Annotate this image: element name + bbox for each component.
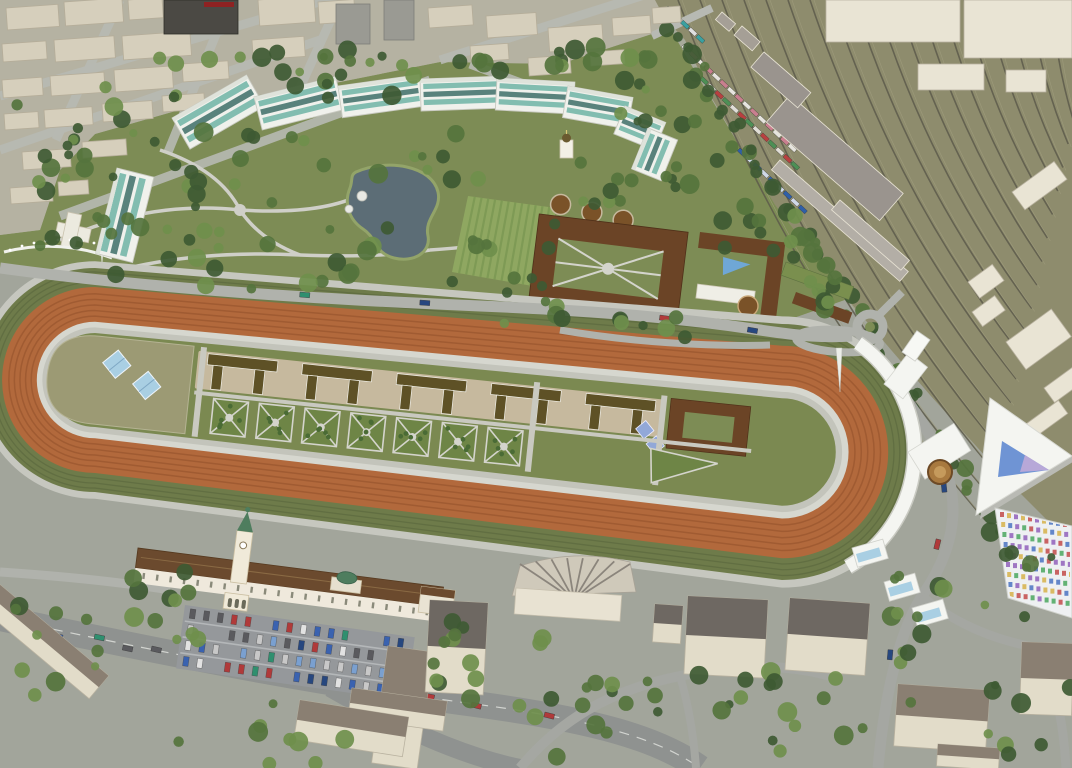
tree bbox=[298, 135, 309, 146]
tree bbox=[688, 115, 702, 129]
tree bbox=[527, 708, 544, 725]
city-building bbox=[4, 112, 39, 130]
tree bbox=[834, 726, 854, 746]
parked-car bbox=[196, 658, 203, 668]
tribune-seat bbox=[1008, 523, 1012, 528]
tree bbox=[543, 691, 559, 707]
parked-car bbox=[245, 617, 252, 627]
tree bbox=[603, 183, 619, 199]
city-building bbox=[50, 72, 105, 96]
city-building bbox=[612, 15, 651, 36]
park-plaza bbox=[234, 204, 246, 216]
tribune-seat bbox=[1046, 549, 1050, 554]
tree bbox=[905, 697, 916, 708]
tree bbox=[712, 701, 730, 719]
tree bbox=[713, 211, 732, 230]
tribune-seat bbox=[1013, 563, 1017, 568]
tree bbox=[778, 702, 798, 722]
tree bbox=[28, 688, 42, 702]
tribune-seat bbox=[1059, 600, 1063, 605]
tree bbox=[44, 230, 60, 246]
tree bbox=[746, 144, 757, 155]
tree bbox=[169, 159, 181, 171]
tree bbox=[710, 153, 725, 168]
tree bbox=[900, 644, 917, 661]
tribune-seat bbox=[1030, 536, 1034, 541]
tribune-seat bbox=[1036, 586, 1040, 591]
tree bbox=[32, 630, 42, 640]
city-building bbox=[114, 66, 173, 92]
stable-roof-wing bbox=[211, 365, 223, 390]
tree bbox=[669, 310, 683, 324]
tree bbox=[1001, 746, 1016, 761]
tree bbox=[422, 165, 432, 175]
tree bbox=[1019, 611, 1030, 622]
parked-car bbox=[286, 622, 293, 632]
city-building bbox=[258, 0, 316, 26]
parked-car bbox=[231, 615, 238, 625]
tree bbox=[161, 251, 178, 268]
tree bbox=[105, 228, 117, 240]
parked-car bbox=[365, 666, 372, 676]
tree bbox=[734, 690, 749, 705]
car bbox=[300, 292, 310, 298]
tree bbox=[1022, 563, 1031, 572]
tree bbox=[107, 266, 124, 283]
tree bbox=[436, 150, 450, 164]
city-building bbox=[54, 36, 115, 62]
tree bbox=[548, 748, 566, 766]
tree bbox=[604, 677, 620, 693]
tree bbox=[565, 40, 585, 60]
infield-quad-court bbox=[682, 412, 734, 443]
tree bbox=[766, 673, 783, 690]
tree bbox=[247, 284, 257, 294]
rail-building bbox=[826, 0, 960, 42]
parked-car bbox=[284, 638, 291, 648]
parked-car bbox=[183, 656, 190, 666]
parked-car bbox=[312, 642, 319, 652]
tree bbox=[534, 629, 552, 647]
tree bbox=[97, 214, 111, 228]
tree bbox=[188, 249, 206, 267]
tree bbox=[912, 611, 923, 622]
tribune-seat bbox=[1004, 542, 1008, 547]
tree bbox=[289, 732, 309, 752]
tree bbox=[10, 604, 21, 615]
tree bbox=[163, 225, 173, 235]
tree bbox=[70, 236, 83, 249]
tree bbox=[787, 208, 803, 224]
tree bbox=[1034, 738, 1047, 751]
tree bbox=[365, 58, 374, 67]
tree bbox=[168, 593, 182, 607]
tree bbox=[443, 170, 461, 188]
tree bbox=[229, 178, 241, 190]
tree bbox=[468, 670, 485, 687]
tree bbox=[586, 37, 606, 57]
tree bbox=[186, 627, 200, 641]
parked-car bbox=[293, 672, 300, 682]
colonnade-post bbox=[93, 242, 96, 245]
tree bbox=[428, 657, 440, 669]
tree bbox=[418, 152, 427, 161]
tree bbox=[821, 296, 834, 309]
tribune-seat bbox=[1064, 532, 1068, 537]
tribune-seat bbox=[1042, 578, 1046, 583]
tree bbox=[811, 238, 821, 248]
tree bbox=[147, 613, 163, 629]
tree bbox=[500, 319, 509, 328]
tree bbox=[129, 129, 137, 137]
parked-car bbox=[282, 654, 289, 664]
city-building bbox=[128, 0, 163, 20]
tribune-seat bbox=[1000, 512, 1004, 517]
gazebo bbox=[357, 191, 367, 201]
tree bbox=[322, 92, 334, 104]
tree bbox=[377, 52, 386, 61]
tree bbox=[999, 547, 1014, 562]
stable-roof-wing bbox=[494, 395, 506, 420]
tree bbox=[382, 86, 401, 105]
tribune-seat bbox=[1040, 558, 1044, 563]
tree bbox=[232, 150, 249, 167]
rail-building bbox=[918, 64, 984, 90]
tree bbox=[109, 172, 118, 181]
tribune-seat bbox=[1009, 533, 1013, 538]
tribune-seat bbox=[1028, 575, 1032, 580]
tower-clock bbox=[239, 542, 247, 550]
parked-car bbox=[212, 644, 219, 654]
tree bbox=[725, 140, 738, 153]
tribune-seat bbox=[1032, 546, 1036, 551]
tree bbox=[252, 48, 271, 67]
city-tower bbox=[336, 4, 370, 44]
tree bbox=[124, 569, 142, 587]
parked-car bbox=[254, 650, 261, 660]
chapel bbox=[560, 140, 573, 158]
parked-car bbox=[339, 646, 346, 656]
tree bbox=[934, 580, 952, 598]
tree bbox=[472, 53, 488, 69]
stable-roof-wing bbox=[400, 385, 412, 410]
tree bbox=[858, 723, 868, 733]
tribune-seat bbox=[1061, 561, 1065, 566]
city-building bbox=[2, 41, 47, 62]
tree bbox=[267, 197, 278, 208]
tree bbox=[405, 67, 422, 84]
tree bbox=[545, 56, 564, 75]
tree bbox=[752, 214, 767, 229]
tree bbox=[49, 606, 63, 620]
tribune-seat bbox=[1022, 584, 1026, 589]
parked-car bbox=[300, 624, 307, 634]
tribune-seat bbox=[1039, 548, 1043, 553]
tree bbox=[35, 240, 46, 251]
tribune-seat bbox=[1038, 596, 1042, 601]
tribune-seat bbox=[1019, 554, 1023, 559]
parked-car bbox=[307, 674, 314, 684]
city-building bbox=[58, 180, 89, 196]
tree bbox=[754, 227, 766, 239]
tree bbox=[661, 171, 672, 182]
parked-car bbox=[242, 632, 249, 642]
tree bbox=[131, 218, 150, 237]
south-building-roof bbox=[686, 596, 768, 639]
tree bbox=[447, 276, 458, 287]
south-building-roof bbox=[787, 598, 869, 639]
parked-car bbox=[189, 609, 196, 619]
tree bbox=[184, 165, 198, 179]
tree bbox=[76, 159, 94, 177]
tribune-seat bbox=[1017, 593, 1021, 598]
tree bbox=[575, 157, 587, 169]
parked-car bbox=[328, 628, 335, 638]
tree bbox=[655, 105, 667, 117]
tribune-seat bbox=[1065, 542, 1069, 547]
tree bbox=[737, 672, 753, 688]
tribune-seat bbox=[1041, 568, 1045, 573]
tree bbox=[588, 197, 601, 210]
tree bbox=[894, 571, 904, 581]
tree bbox=[448, 628, 461, 641]
tree bbox=[316, 275, 329, 288]
colonnade-post bbox=[9, 249, 12, 252]
tribune-seat bbox=[1025, 545, 1029, 550]
tree bbox=[295, 68, 304, 77]
tribune-seat bbox=[1062, 571, 1066, 576]
parked-car bbox=[326, 644, 333, 654]
parked-car bbox=[238, 664, 245, 674]
tree bbox=[63, 141, 73, 151]
tree bbox=[575, 698, 591, 714]
south-building-roof bbox=[654, 604, 683, 625]
parked-car bbox=[252, 666, 259, 676]
residential-building bbox=[495, 78, 575, 114]
tree bbox=[317, 158, 331, 172]
tree bbox=[14, 662, 30, 678]
tribune-seat bbox=[1037, 538, 1041, 543]
parked-car bbox=[337, 662, 344, 672]
parked-car bbox=[270, 636, 277, 646]
tree bbox=[287, 77, 305, 95]
tree bbox=[690, 666, 709, 685]
tree bbox=[235, 52, 246, 63]
tree bbox=[912, 624, 931, 643]
roundabout-island bbox=[865, 322, 875, 332]
parked-car bbox=[383, 636, 390, 646]
tree bbox=[1047, 553, 1055, 561]
parked-car bbox=[203, 611, 210, 621]
parked-car bbox=[342, 630, 349, 640]
tree bbox=[728, 121, 740, 133]
parked-car bbox=[314, 626, 321, 636]
tribune-seat bbox=[1063, 581, 1067, 586]
tree bbox=[674, 116, 691, 133]
parked-car bbox=[296, 656, 303, 666]
tree bbox=[615, 71, 634, 90]
tree bbox=[767, 244, 781, 258]
tribune-seat bbox=[1007, 513, 1011, 518]
stable-roof-wing bbox=[252, 370, 264, 395]
tribune-seat bbox=[1018, 544, 1022, 549]
highrise-red-band bbox=[204, 2, 234, 7]
tree bbox=[673, 32, 683, 42]
tribune-seat bbox=[1066, 601, 1070, 606]
tree bbox=[912, 388, 922, 398]
parked-car bbox=[321, 676, 328, 686]
city-building bbox=[44, 107, 93, 128]
tree bbox=[513, 699, 527, 713]
parked-car bbox=[353, 648, 360, 658]
tree bbox=[764, 179, 781, 196]
tribune-seat bbox=[1029, 526, 1033, 531]
tree bbox=[736, 198, 753, 215]
tree bbox=[259, 236, 275, 252]
tribune-seat bbox=[1036, 528, 1040, 533]
tree bbox=[784, 235, 798, 249]
tribune-seat bbox=[1064, 591, 1068, 596]
tree bbox=[527, 273, 537, 283]
parked-car bbox=[224, 662, 231, 672]
parked-car bbox=[217, 613, 224, 623]
tree bbox=[614, 107, 627, 120]
tree bbox=[653, 707, 663, 717]
tribune-seat bbox=[1014, 573, 1018, 578]
medallion-center bbox=[934, 466, 946, 478]
tree bbox=[502, 287, 512, 297]
tribune-seat bbox=[1057, 531, 1061, 536]
tree bbox=[787, 251, 800, 264]
tree bbox=[491, 62, 509, 80]
tree bbox=[625, 173, 639, 187]
tribune-seat bbox=[1052, 599, 1056, 604]
tree bbox=[269, 699, 278, 708]
tree bbox=[173, 736, 183, 746]
stable-roof-wing bbox=[305, 375, 317, 400]
tree bbox=[105, 97, 124, 116]
tree bbox=[717, 105, 728, 116]
tribune-seat bbox=[1043, 529, 1047, 534]
rail-building bbox=[964, 0, 1072, 58]
gazebo bbox=[345, 205, 353, 213]
tree bbox=[647, 688, 663, 704]
tribune-seat bbox=[1008, 582, 1012, 587]
tree bbox=[638, 321, 647, 330]
tree bbox=[357, 241, 377, 261]
tree bbox=[447, 125, 465, 143]
tree bbox=[335, 69, 347, 81]
tribune-seat bbox=[1045, 598, 1049, 603]
tree bbox=[508, 271, 521, 284]
stable-roof-wing bbox=[441, 390, 453, 415]
tree bbox=[828, 671, 843, 686]
tribune-seat bbox=[1024, 594, 1028, 599]
tree bbox=[578, 196, 588, 206]
tree bbox=[214, 227, 225, 238]
tree bbox=[274, 63, 292, 81]
parked-car bbox=[335, 678, 342, 688]
tribune-seat bbox=[1022, 525, 1026, 530]
tribune-seat bbox=[1048, 569, 1052, 574]
tree bbox=[682, 45, 702, 65]
tribune-seat bbox=[1049, 579, 1053, 584]
tree bbox=[768, 736, 778, 746]
tree bbox=[248, 722, 268, 742]
tree bbox=[196, 223, 212, 239]
tree bbox=[633, 117, 641, 125]
city-building bbox=[486, 13, 537, 38]
tree bbox=[638, 50, 650, 62]
tree bbox=[38, 149, 52, 163]
tree bbox=[671, 161, 682, 172]
parked-car bbox=[266, 668, 273, 678]
tree bbox=[452, 54, 467, 69]
tree bbox=[789, 720, 801, 732]
parked-car bbox=[256, 634, 263, 644]
tree bbox=[286, 131, 298, 143]
tree bbox=[150, 137, 160, 147]
tree bbox=[81, 614, 92, 625]
tribune-seat bbox=[1044, 539, 1048, 544]
tribune-seat bbox=[1016, 534, 1020, 539]
tree bbox=[396, 59, 408, 71]
tree bbox=[180, 585, 196, 601]
tree bbox=[214, 243, 224, 253]
tribune-seat bbox=[1002, 532, 1006, 537]
tree bbox=[678, 330, 692, 344]
tribune-seat bbox=[1043, 588, 1047, 593]
parked-car bbox=[240, 648, 247, 658]
tree bbox=[614, 315, 629, 330]
tree bbox=[461, 689, 480, 708]
tree bbox=[197, 277, 214, 294]
tribune-seat bbox=[1015, 524, 1019, 529]
tree bbox=[587, 675, 603, 691]
tree bbox=[659, 22, 674, 37]
tribune-seat bbox=[1035, 576, 1039, 581]
car bbox=[420, 300, 430, 306]
parked-car bbox=[351, 664, 358, 674]
chapel-dome bbox=[562, 134, 571, 143]
tree bbox=[750, 166, 762, 178]
tree bbox=[817, 691, 831, 705]
colonnade-post bbox=[33, 242, 36, 245]
colonnade-post bbox=[21, 245, 24, 248]
tree bbox=[891, 607, 904, 620]
tribune-seat bbox=[1001, 522, 1005, 527]
car bbox=[887, 650, 893, 660]
tree bbox=[429, 673, 443, 687]
tree bbox=[201, 51, 218, 68]
tree bbox=[241, 128, 256, 143]
tribune-seat bbox=[1050, 530, 1054, 535]
tribune-seat bbox=[1015, 583, 1019, 588]
tree bbox=[64, 150, 73, 159]
tree bbox=[184, 234, 196, 246]
tree bbox=[961, 485, 971, 495]
tribune-seat bbox=[1067, 552, 1071, 557]
tribune-seat bbox=[1056, 580, 1060, 585]
tree bbox=[46, 672, 66, 692]
city-building bbox=[428, 5, 473, 28]
parked-car bbox=[272, 620, 279, 630]
tree bbox=[700, 62, 710, 72]
tree bbox=[73, 123, 83, 133]
tree bbox=[718, 241, 732, 255]
parked-car bbox=[298, 640, 305, 650]
parked-car bbox=[367, 650, 374, 660]
